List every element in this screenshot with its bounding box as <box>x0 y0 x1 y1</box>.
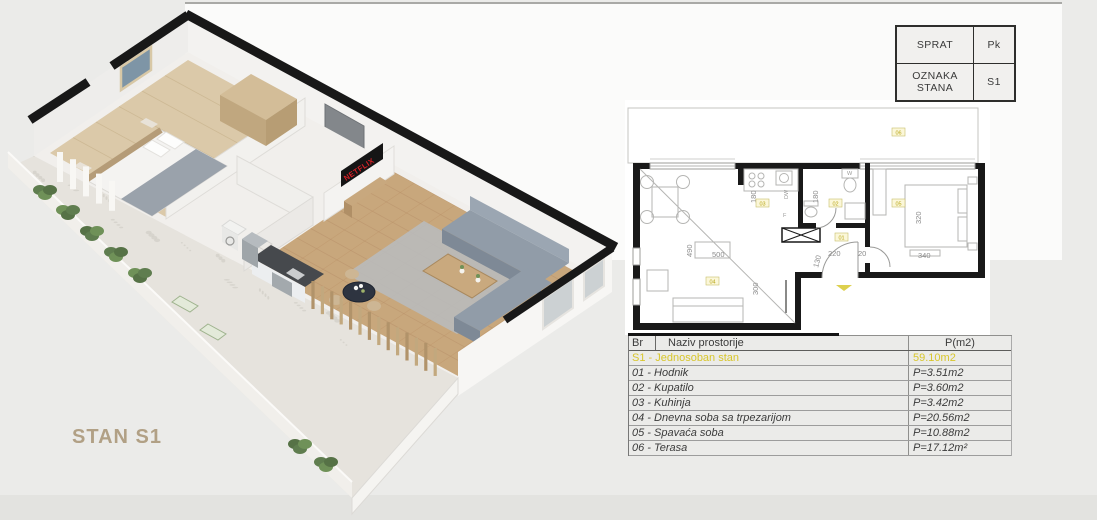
dining-chair <box>367 301 381 311</box>
apartment-2d-plan: 180 180 490 500 300 130 220 20 340 320 0… <box>620 95 1020 345</box>
unit-area: 59.10m2 <box>908 351 1011 365</box>
table-row: 02 - Kupatilo P=3.60m2 <box>629 381 1011 396</box>
unit-info-table: SPRAT Pk OZNAKA STANA S1 <box>895 25 1016 102</box>
svg-text:340: 340 <box>918 251 931 260</box>
room-area: P=17.12m² <box>908 441 1011 455</box>
svg-text:490: 490 <box>685 244 694 257</box>
svg-text:02: 02 <box>832 202 838 208</box>
flowers <box>460 265 464 269</box>
table-row: 05 - Spavaća soba P=10.88m2 <box>629 426 1011 441</box>
table-row: OZNAKA STANA S1 <box>897 63 1014 100</box>
svg-text:05: 05 <box>895 202 901 208</box>
apartment-caption: STAN S1 <box>72 426 162 449</box>
table-row: 01 - Hodnik P=3.51m2 <box>629 366 1011 381</box>
table-flowers <box>354 286 358 290</box>
oznaka-value: S1 <box>974 64 1014 100</box>
room-name: 04 - Dnevna soba sa trpezarijom <box>629 412 908 424</box>
svg-text:DW: DW <box>784 189 790 199</box>
dining-table <box>343 282 375 302</box>
room-area: P=20.56m2 <box>908 411 1011 425</box>
svg-text:130: 130 <box>811 254 823 268</box>
svg-text:220: 220 <box>828 249 841 258</box>
svg-text:500: 500 <box>712 250 725 259</box>
terrace-outline <box>628 108 978 163</box>
col-area: P(m2) <box>908 336 1011 350</box>
svg-text:W: W <box>847 171 853 177</box>
table-flowers <box>359 284 363 288</box>
room-area: P=10.88m2 <box>908 426 1011 440</box>
table-header-row: Br Naziv prostorije P(m2) <box>629 336 1011 351</box>
svg-text:06: 06 <box>895 131 901 137</box>
room-name: 06 - Terasa <box>629 442 908 454</box>
table-flowers <box>361 289 365 293</box>
dining-chair <box>345 269 359 279</box>
vase <box>460 269 465 274</box>
oznaka-label: OZNAKA STANA <box>897 64 974 100</box>
room-name: 01 - Hodnik <box>629 367 908 379</box>
room-name: 03 - Kuhinja <box>629 397 908 409</box>
sprat-label: SPRAT <box>897 27 974 63</box>
table-row: 03 - Kuhinja P=3.42m2 <box>629 396 1011 411</box>
room-name: 02 - Kupatilo <box>629 382 908 394</box>
sprat-value: Pk <box>974 27 1014 63</box>
col-br: Br <box>629 336 656 350</box>
entrance-arrow <box>836 285 852 291</box>
flowers <box>476 274 480 278</box>
unit-name: S1 - Jednosoban stan <box>629 352 908 364</box>
room-area: P=3.42m2 <box>908 396 1011 410</box>
room-area: P=3.51m2 <box>908 366 1011 380</box>
svg-text:01: 01 <box>838 236 844 242</box>
svg-text:300: 300 <box>751 282 760 295</box>
table-row: SPRAT Pk <box>897 27 1014 63</box>
room-area: P=3.60m2 <box>908 381 1011 395</box>
table-row: 04 - Dnevna soba sa trpezarijom P=20.56m… <box>629 411 1011 426</box>
svg-text:F: F <box>783 213 787 219</box>
svg-text:20: 20 <box>858 249 866 258</box>
svg-text:180: 180 <box>811 190 820 203</box>
svg-text:03: 03 <box>759 202 765 208</box>
svg-text:04: 04 <box>709 280 715 286</box>
room-name: 05 - Spavaća soba <box>629 427 908 439</box>
vase <box>476 278 481 283</box>
svg-text:320: 320 <box>914 211 923 224</box>
table-row-total: S1 - Jednosoban stan 59.10m2 <box>629 351 1011 366</box>
col-name: Naziv prostorije <box>656 337 908 349</box>
table-row: 06 - Terasa P=17.12m² <box>629 441 1011 456</box>
